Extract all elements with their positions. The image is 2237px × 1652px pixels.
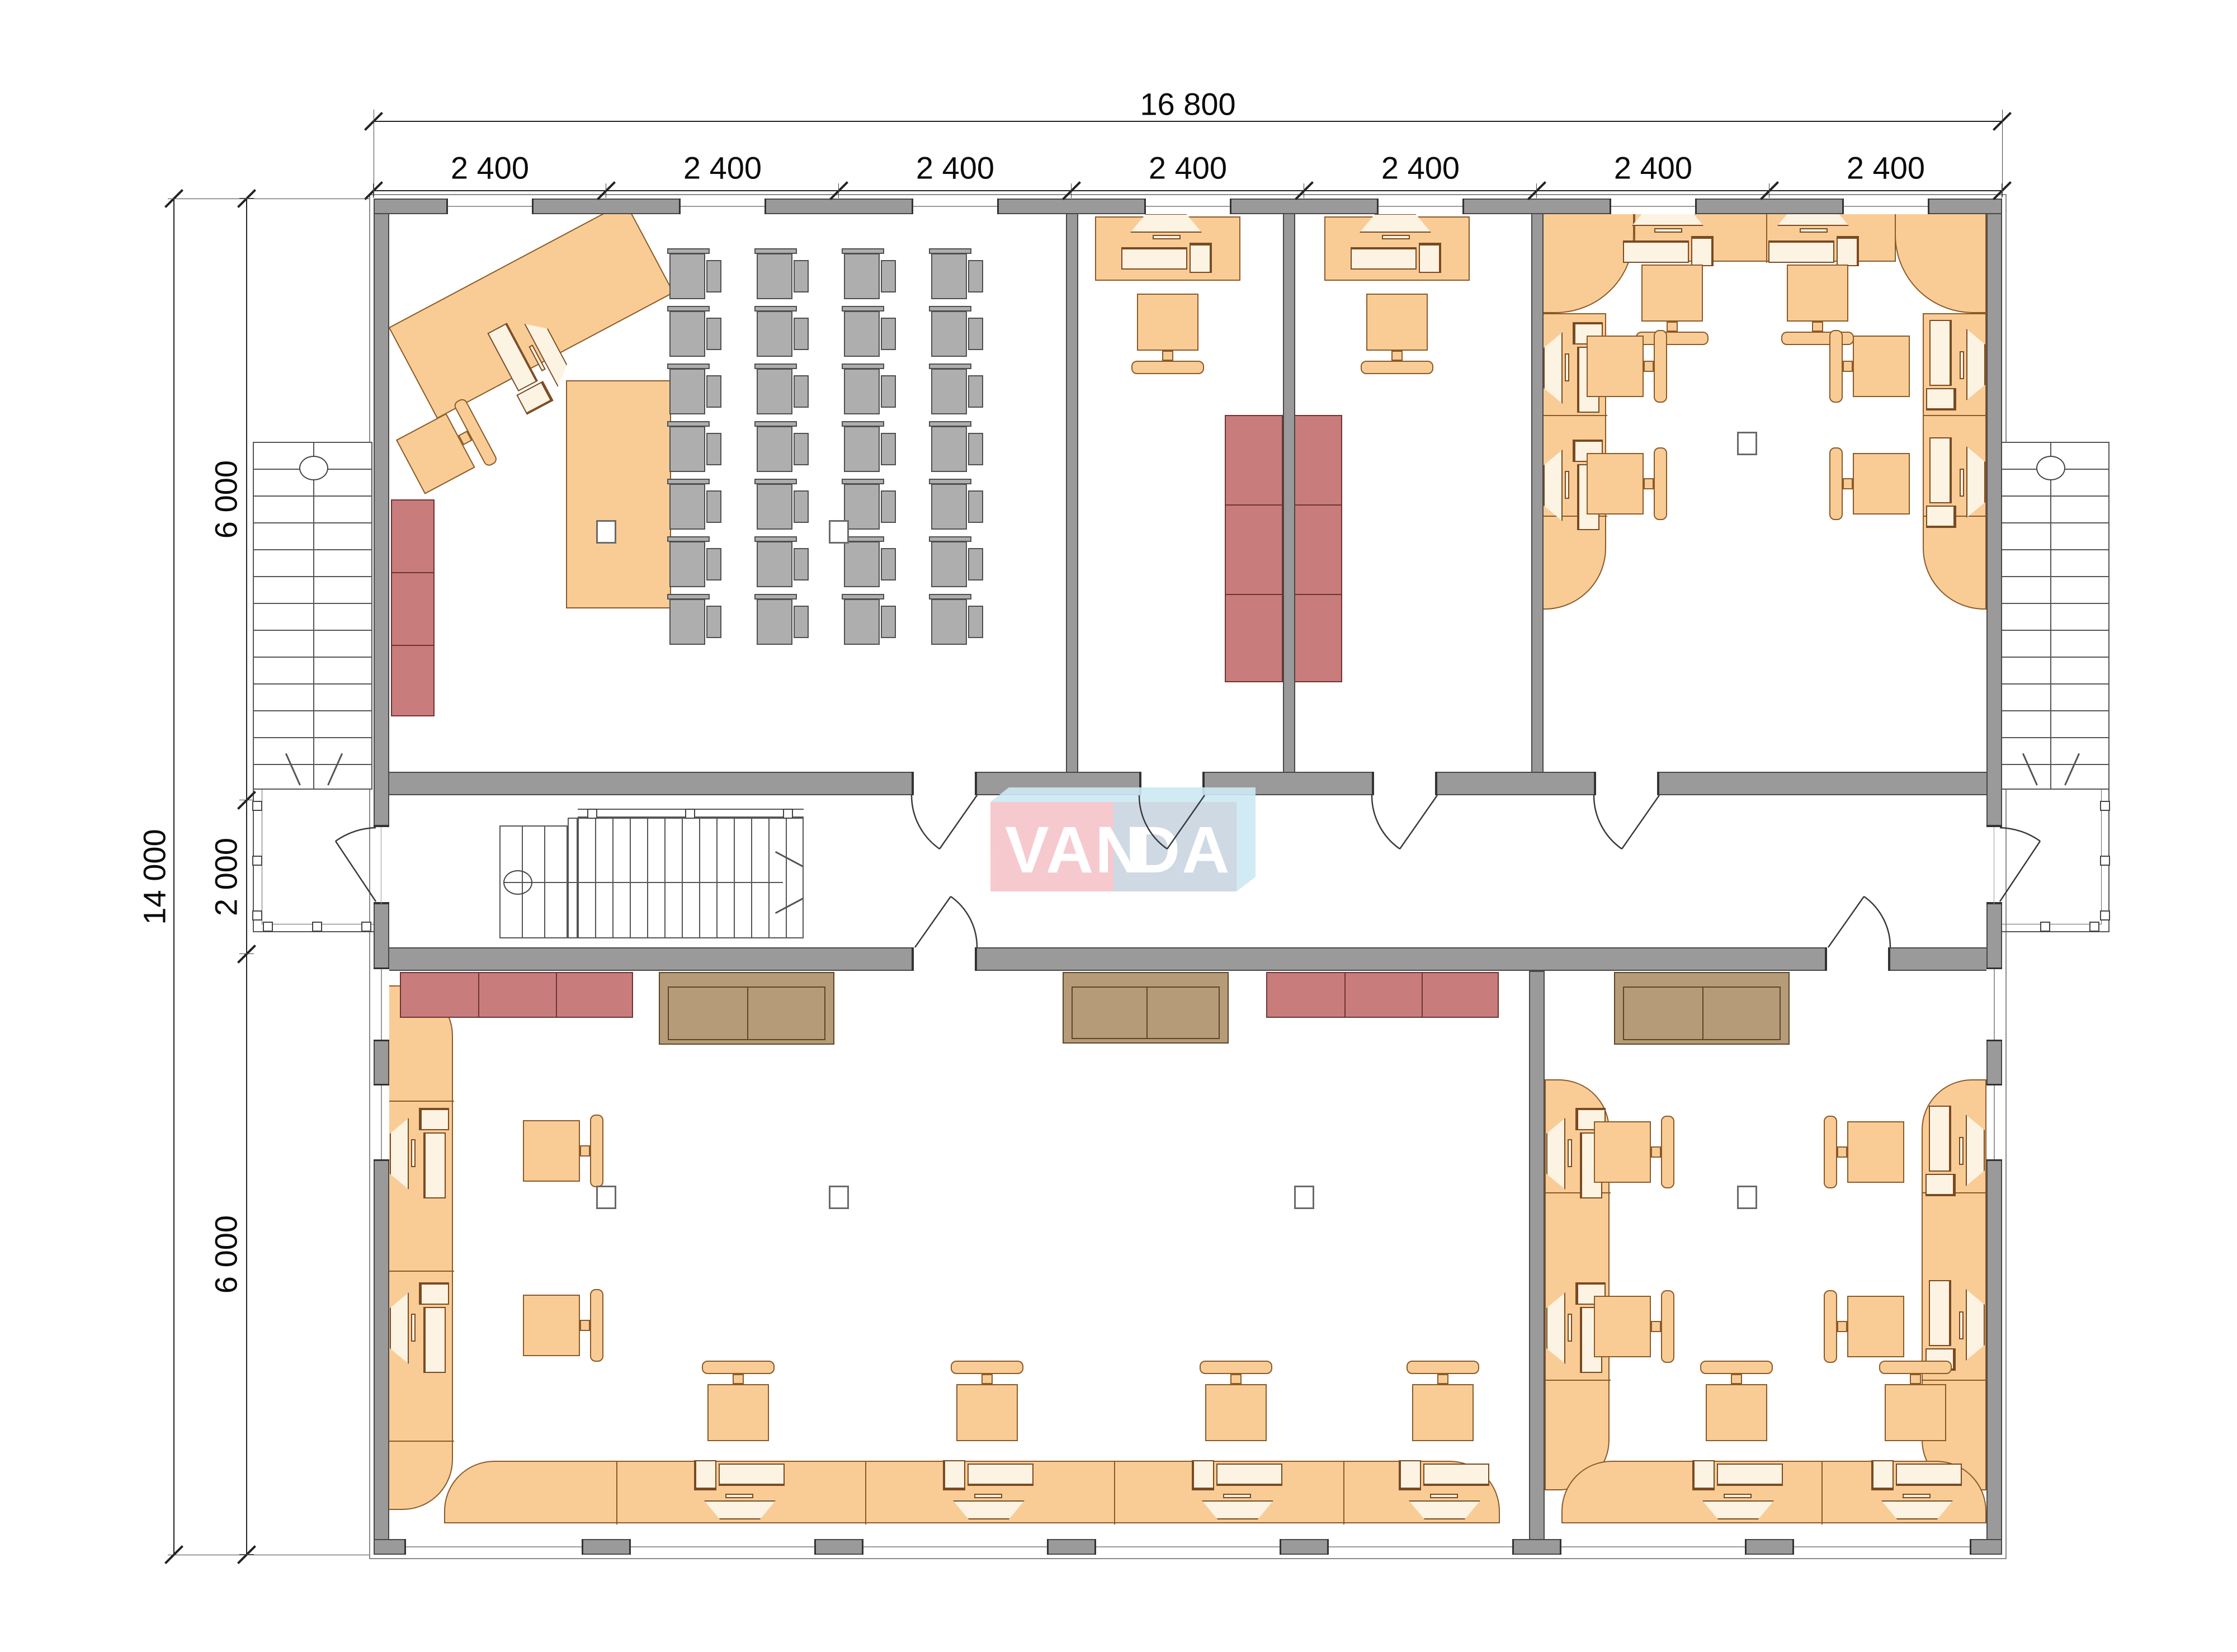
door-arc-exit-right: [2000, 828, 2040, 901]
door-arc-room-d: [1594, 795, 1659, 849]
door-arc-bottom-right-room: [1828, 896, 1890, 947]
door-arc-office-1: [1139, 795, 1205, 849]
door-arc-office-2: [1372, 795, 1437, 849]
door-arc-exit-left: [336, 828, 376, 901]
door-arcs-layer: [0, 0, 2237, 1652]
door-arc-open-office: [915, 896, 977, 947]
door-arc-room-a: [912, 795, 977, 849]
floor-plan: 16 8002 4002 4002 4002 4002 4002 4002 40…: [0, 0, 2237, 1652]
